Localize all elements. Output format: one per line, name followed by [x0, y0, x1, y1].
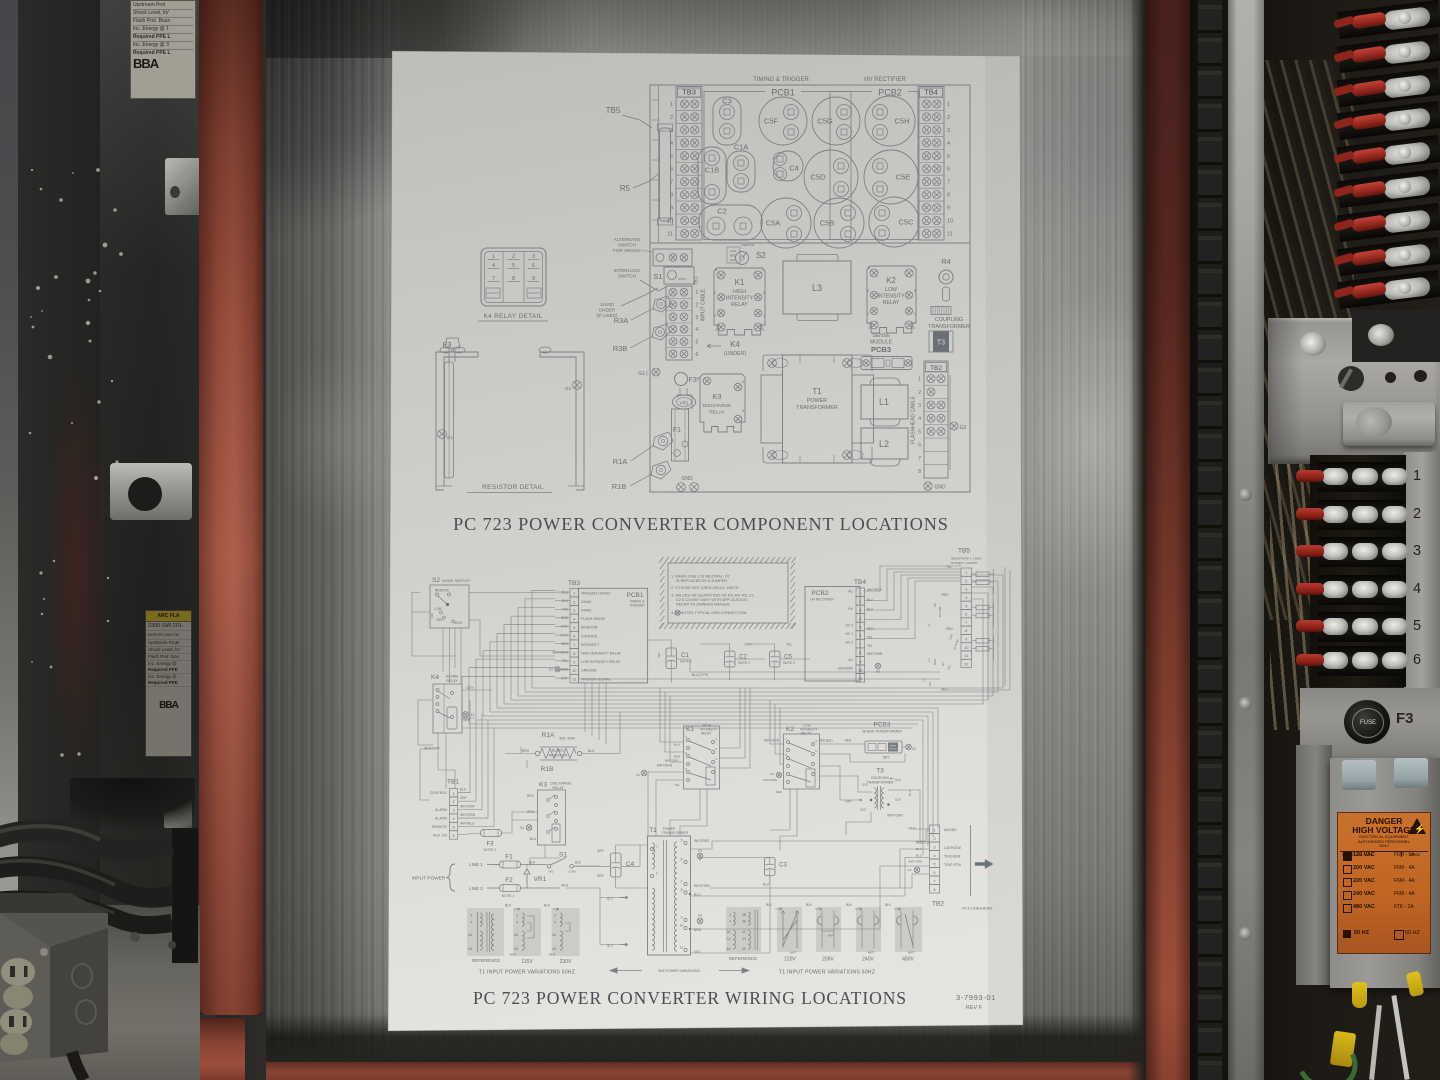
svg-text:UNDER: UNDER: [599, 308, 616, 313]
svg-text:4: 4: [715, 328, 717, 332]
svg-text:35K, 50W: 35K, 50W: [559, 737, 575, 741]
svg-text:QC6: QC6: [862, 783, 868, 787]
svg-text:1: 1: [763, 314, 765, 318]
svg-text:SENSE: SENSE: [872, 333, 890, 339]
svg-text:BLU: BLU: [908, 790, 912, 796]
svg-text:TB3: TB3: [682, 88, 696, 97]
svg-text:7: 7: [762, 268, 764, 272]
svg-text:RED: RED: [819, 739, 826, 743]
svg-text:L1: L1: [879, 397, 889, 407]
svg-text:1: 1: [696, 290, 699, 296]
svg-text:7: 7: [670, 180, 673, 186]
svg-text:LINE 1: LINE 1: [469, 862, 483, 867]
svg-text:TRIGGER 120VAC: TRIGGER 120VAC: [581, 591, 611, 595]
svg-text:4: 4: [670, 141, 673, 147]
svg-text:N/O: N/O: [548, 870, 554, 874]
svg-text:RED: RED: [522, 749, 530, 753]
svg-text:WHT: WHT: [463, 718, 471, 722]
svg-text:8: 8: [868, 266, 870, 270]
svg-text:2: 2: [867, 312, 869, 316]
svg-text:10: 10: [858, 667, 863, 672]
svg-text:RED: RED: [826, 739, 833, 743]
svg-text:GRY: GRY: [597, 874, 605, 878]
svg-text:GROUND: GROUND: [581, 669, 597, 673]
svg-text:2: 2: [714, 314, 716, 318]
svg-text:INTENSITY: INTENSITY: [726, 296, 754, 302]
svg-text:4: 4: [729, 920, 731, 924]
svg-text:G1: G1: [636, 773, 640, 777]
svg-text:GRY: GRY: [466, 686, 474, 690]
svg-text:2: 2: [670, 115, 673, 121]
svg-text:K4 RELAY DETAIL: K4 RELAY DETAIL: [483, 313, 542, 320]
svg-text:BRN: BRN: [694, 928, 702, 932]
svg-text:BLU: BLU: [867, 598, 874, 602]
svg-text:FOR 480VAC: FOR 480VAC: [613, 248, 641, 253]
svg-text:C4: C4: [626, 861, 635, 868]
svg-text:11: 11: [947, 231, 953, 237]
svg-text:3: 3: [913, 326, 915, 330]
svg-text:IS REPLACED BY A JUMPER.: IS REPLACED BY A JUMPER.: [676, 579, 728, 583]
svg-text:RED: RED: [776, 790, 783, 794]
svg-text:YEL: YEL: [657, 652, 661, 658]
svg-text:9: 9: [947, 206, 950, 212]
svg-text:G2: G2: [912, 747, 916, 751]
svg-text:4: 4: [554, 921, 556, 925]
svg-text:R1B: R1B: [612, 482, 627, 491]
svg-text:8: 8: [947, 193, 950, 199]
svg-text:HV RECTIFIER: HV RECTIFIER: [810, 598, 834, 602]
svg-text:G2: G2: [907, 868, 911, 872]
svg-text:SWITCH: SWITCH: [618, 243, 636, 248]
svg-text:RESISTOR DETAIL: RESISTOR DETAIL: [482, 484, 544, 491]
svg-text:MODE SWITCH: MODE SWITCH: [442, 579, 470, 583]
svg-text:ANODE: ANODE: [944, 828, 957, 832]
svg-text:CONTROL: CONTROL: [430, 791, 447, 795]
svg-text:K1: K1: [686, 726, 694, 733]
svg-text:WHT: WHT: [790, 951, 797, 955]
svg-text:C5B: C5B: [820, 219, 835, 228]
svg-text:RELAY: RELAY: [709, 410, 725, 416]
svg-text:WHT: WHT: [510, 953, 517, 957]
svg-text:24VAC: 24VAC: [581, 600, 592, 604]
svg-text:BLK: BLK: [575, 861, 582, 865]
svg-text:BLU (TYP): BLU (TYP): [692, 673, 708, 677]
svg-text:INPUT POWER: INPUT POWER: [412, 876, 446, 882]
svg-text:TB1: TB1: [447, 779, 459, 786]
svg-text:8: 8: [742, 380, 744, 384]
svg-text:4: 4: [516, 921, 518, 925]
svg-text:3: 3: [729, 913, 731, 917]
svg-text:3: 3: [470, 914, 472, 918]
svg-text:L3: L3: [927, 658, 931, 662]
svg-text:G1: G1: [447, 435, 454, 440]
svg-text:7: 7: [492, 276, 495, 282]
svg-text:240V: 240V: [862, 957, 874, 963]
svg-text:GROUND: GROUND: [838, 667, 854, 671]
svg-text:BLK: BLK: [544, 904, 551, 908]
svg-text:L3: L3: [812, 283, 822, 293]
svg-text:WHT/ORN: WHT/ORN: [867, 652, 883, 656]
svg-text:SEE POWER VARIATIONS: SEE POWER VARIATIONS: [658, 969, 700, 973]
svg-text:BLK: BLK: [460, 788, 467, 792]
svg-text:PC 723 POWER CONVERTER COM: PC 723 POWER CONVERTER COMPONENT LOCATIO…: [453, 514, 949, 534]
svg-text:C1: C1: [681, 653, 689, 659]
svg-text:2. F3 FUSE NOT USED ON ALL UN: 2. F3 FUSE NOT USED ON ALL UNITS.: [671, 586, 739, 590]
svg-text:C2: C2: [717, 207, 727, 216]
svg-text:HIGH INTENSITY RELAY: HIGH INTENSITY RELAY: [581, 652, 622, 656]
svg-text:6: 6: [681, 858, 683, 862]
svg-text:WHT: WHT: [828, 934, 835, 938]
svg-text:4. DENOTES TYPICAL GND CO: 4. DENOTES TYPICAL GND CONNECTION.: [671, 611, 747, 615]
svg-text:2: 2: [656, 872, 658, 876]
svg-text:C2: C2: [739, 655, 747, 661]
svg-text:C5A: C5A: [766, 219, 781, 228]
svg-text:10: 10: [572, 668, 577, 673]
svg-text:RELAY: RELAY: [701, 732, 712, 736]
svg-text:C5E: C5E: [896, 173, 911, 182]
svg-text:RELAY: RELAY: [552, 786, 564, 790]
svg-text:5: 5: [696, 340, 699, 346]
svg-text:2: 2: [512, 254, 515, 260]
svg-text:3: 3: [918, 403, 921, 409]
svg-text:5: 5: [512, 263, 515, 269]
svg-text:LINE 2: LINE 2: [469, 886, 483, 891]
svg-text:DISCHARGE: DISCHARGE: [703, 403, 732, 409]
svg-text:3-7993-01: 3-7993-01: [956, 993, 996, 1002]
svg-text:5: 5: [670, 154, 673, 160]
svg-text:BLU: BLU: [674, 743, 680, 747]
svg-text:G2: G2: [565, 386, 572, 391]
svg-text:WHT: WHT: [908, 951, 915, 955]
svg-text:BLK: BLK: [766, 903, 773, 907]
svg-text:F1: F1: [505, 854, 513, 861]
svg-text:TRIG RTN: TRIG RTN: [944, 863, 961, 867]
svg-text:8: 8: [681, 888, 683, 892]
svg-text:TB2: TB2: [930, 365, 942, 372]
svg-text:S2: S2: [432, 577, 440, 584]
svg-text:K2: K2: [786, 726, 794, 733]
svg-text:AC: AC: [848, 658, 853, 662]
svg-text:2: 2: [947, 115, 950, 121]
svg-text:5: 5: [681, 839, 683, 843]
svg-text:1. WHEN LINE 2 IS NEUTRAL, F2: 1. WHEN LINE 2 IS NEUTRAL, F2: [671, 575, 729, 579]
svg-text:C1B: C1B: [705, 166, 720, 175]
svg-text:BLEED: BLEED: [552, 749, 564, 753]
svg-text:MED: MED: [730, 254, 736, 258]
svg-text:5: 5: [918, 429, 921, 435]
svg-text:HIGH: HIGH: [733, 289, 746, 295]
svg-text:6: 6: [867, 289, 869, 293]
svg-text:NOTE 3: NOTE 3: [783, 661, 795, 665]
svg-text:R3A: R3A: [614, 316, 629, 325]
svg-text:NOTE 3: NOTE 3: [738, 661, 750, 665]
svg-text:G2: G2: [876, 670, 880, 674]
svg-text:R5: R5: [933, 603, 937, 607]
svg-text:3: 3: [516, 914, 518, 918]
svg-text:R1B: R1B: [541, 766, 554, 773]
svg-text:230V: 230V: [560, 959, 572, 965]
svg-text:T1 INPUT POWER VARIATIONS: T1 INPUT POWER VARIATIONS 60HZ: [779, 970, 875, 976]
svg-text:-HV: -HV: [847, 607, 854, 611]
svg-text:1: 1: [947, 102, 950, 108]
svg-text:BLU: BLU: [916, 854, 922, 858]
svg-text:REFER TO OWNERS MANUAL.: REFER TO OWNERS MANUAL.: [676, 603, 731, 607]
svg-text:C2: C2: [770, 772, 774, 776]
svg-text:10: 10: [964, 645, 969, 650]
svg-text:PCB1: PCB1: [771, 88, 795, 98]
svg-text:4: 4: [868, 326, 870, 330]
svg-text:4C: 4C: [742, 947, 747, 951]
svg-text:INTERLOCK: INTERLOCK: [614, 268, 641, 273]
svg-text:AC: AC: [848, 590, 853, 594]
svg-text:TRIGGER: TRIGGER: [944, 855, 961, 859]
svg-text:WHT/GRN: WHT/GRN: [763, 778, 777, 782]
svg-text:QC4: QC4: [895, 798, 901, 802]
svg-text:480V: 480V: [902, 957, 914, 963]
svg-text:MODULE: MODULE: [889, 749, 897, 751]
svg-text:LOW: LOW: [730, 249, 737, 253]
svg-text:WHT/ORN: WHT/ORN: [460, 813, 476, 817]
svg-text:BLK: BLK: [885, 903, 892, 907]
svg-text:COM: COM: [569, 870, 577, 874]
svg-text:C3: C3: [722, 97, 732, 106]
svg-text:4: 4: [947, 141, 950, 147]
svg-text:6: 6: [532, 263, 535, 269]
svg-text:SENSE: SENSE: [890, 746, 897, 748]
svg-text:GRY: GRY: [597, 849, 605, 853]
svg-text:MONITOR: MONITOR: [581, 626, 598, 630]
svg-text:4: 4: [696, 327, 699, 333]
svg-text:S1: S1: [653, 272, 662, 281]
svg-text:BLK: BLK: [806, 903, 813, 907]
svg-text:WHT/GRY: WHT/GRY: [460, 805, 476, 809]
svg-text:CATHODE: CATHODE: [944, 846, 962, 850]
svg-text:13: 13: [742, 937, 746, 941]
svg-text:INTENSITY: INTENSITY: [581, 643, 600, 647]
svg-text:HIGH: HIGH: [730, 258, 737, 262]
svg-text:G2: G2: [960, 425, 967, 431]
svg-text:BLU: BLU: [867, 608, 874, 612]
svg-text:RELAY: RELAY: [731, 302, 748, 308]
svg-text:DISCHARGE: DISCHARGE: [550, 782, 572, 786]
svg-text:K2: K2: [886, 276, 896, 285]
svg-text:WHT: WHT: [561, 884, 569, 888]
svg-text:REMOTE: REMOTE: [432, 825, 448, 829]
svg-text:C2 & C3 MAY VARY WITH APPLICAT: C2 & C3 MAY VARY WITH APPLICATION.: [676, 598, 748, 602]
svg-text:REMOTE: REMOTE: [435, 589, 450, 593]
svg-text:7: 7: [681, 880, 683, 884]
svg-text:5: 5: [763, 291, 765, 295]
svg-text:TRANSFORMER: TRANSFORMER: [796, 405, 838, 411]
svg-text:C5: C5: [784, 655, 792, 661]
svg-text:12: 12: [964, 661, 969, 666]
svg-text:T3: T3: [876, 768, 884, 775]
svg-text:BLU: BLU: [763, 883, 770, 887]
svg-text:YEL: YEL: [946, 565, 952, 569]
svg-text:DIODES = 1N4007: DIODES = 1N4007: [951, 561, 978, 565]
svg-text:HIGH: HIGH: [454, 621, 463, 625]
svg-text:1: 1: [656, 845, 658, 849]
svg-text:K4: K4: [730, 340, 740, 349]
svg-text:QC2: QC2: [607, 944, 614, 948]
svg-text:RELAY: RELAY: [801, 732, 812, 736]
svg-text:BLU: BLU: [530, 837, 537, 841]
svg-text:G1 (: G1 (: [638, 371, 648, 377]
svg-text:12: 12: [727, 937, 731, 941]
svg-text:FLASH SENSE: FLASH SENSE: [581, 617, 606, 621]
svg-text:TB4: TB4: [924, 88, 938, 97]
svg-text:C3: C3: [779, 863, 787, 869]
svg-text:ORN: ORN: [945, 627, 953, 631]
svg-text:FLASHHEAD CABLE: FLASHHEAD CABLE: [911, 395, 917, 443]
svg-text:6: 6: [670, 167, 673, 173]
svg-text:VIO: VIO: [694, 950, 700, 954]
svg-text:BLK: BLK: [505, 904, 512, 908]
svg-text:PCB1: PCB1: [627, 592, 644, 599]
svg-text:R4: R4: [941, 257, 951, 266]
svg-text:GRY: GRY: [460, 796, 468, 800]
svg-text:RED: RED: [527, 794, 535, 798]
svg-text:WHT/ORN: WHT/ORN: [657, 764, 673, 768]
svg-text:GRY: GRY: [883, 756, 891, 760]
svg-text:QC5: QC5: [860, 808, 866, 812]
svg-text:C1A: C1A: [734, 143, 749, 152]
svg-text:8: 8: [715, 268, 717, 272]
svg-text:5: 5: [947, 154, 950, 160]
svg-text:9: 9: [532, 276, 535, 282]
svg-text:11: 11: [667, 231, 673, 237]
svg-text:TB5: TB5: [958, 548, 970, 555]
svg-text:BLU: BLU: [694, 893, 701, 897]
svg-text:LOW INTENSITY RELAY: LOW INTENSITY RELAY: [581, 660, 621, 664]
svg-text:QC1: QC1: [607, 897, 614, 901]
svg-text:3: 3: [947, 128, 950, 134]
svg-text:POWER: POWER: [807, 398, 827, 404]
svg-text:WHT/GRY: WHT/GRY: [424, 747, 441, 751]
svg-text:VR1: VR1: [680, 401, 689, 406]
svg-text:3B: 3B: [742, 913, 746, 917]
svg-text:TRANSFORMER: TRANSFORMER: [866, 781, 894, 785]
svg-text:K3: K3: [539, 782, 547, 789]
svg-text:PCB2: PCB2: [812, 590, 829, 597]
svg-text:YEL: YEL: [867, 644, 873, 648]
svg-text:C5C: C5C: [898, 218, 914, 227]
svg-text:GND: GND: [681, 476, 693, 482]
svg-text:TB2: TB2: [932, 901, 944, 908]
svg-text:CONTROL: CONTROL: [581, 634, 598, 638]
svg-text:HV 1: HV 1: [845, 632, 853, 636]
svg-text:4B: 4B: [742, 920, 746, 924]
svg-text:YEL: YEL: [786, 643, 792, 647]
svg-text:F3: F3: [486, 842, 494, 848]
svg-text:3: 3: [532, 254, 535, 260]
svg-text:RED: RED: [845, 739, 852, 743]
svg-text:SENSE TRANSFORMER: SENSE TRANSFORMER: [862, 730, 902, 734]
svg-text:RELAY: RELAY: [883, 300, 900, 306]
svg-text:F1: F1: [673, 427, 681, 434]
svg-text:L2: L2: [879, 439, 889, 449]
svg-text:7: 7: [947, 180, 950, 186]
svg-text:S2: S2: [756, 251, 766, 260]
svg-text:9: 9: [681, 916, 683, 920]
svg-text:6: 6: [696, 352, 699, 358]
svg-text:RESISTORS = 1 MEG: RESISTORS = 1 MEG: [951, 557, 983, 561]
svg-text:3: 3: [696, 315, 699, 321]
svg-text:WHT/ORN: WHT/ORN: [887, 814, 903, 818]
svg-text:PCB3: PCB3: [871, 345, 891, 354]
svg-text:ALARM: ALARM: [446, 675, 458, 679]
svg-text:TO FLASHHEAD: TO FLASHHEAD: [962, 906, 993, 911]
svg-text:2: 2: [918, 390, 921, 396]
svg-text:50 OHM: 50 OHM: [938, 606, 942, 617]
svg-text:1: 1: [918, 377, 921, 383]
svg-text:WHT: WHT: [549, 953, 556, 957]
svg-text:7: 7: [918, 456, 921, 462]
svg-text:11: 11: [680, 946, 684, 950]
svg-text:120V: 120V: [784, 957, 796, 963]
svg-text:ALARM: ALARM: [435, 808, 447, 812]
svg-text:QC3: QC3: [895, 778, 901, 782]
svg-text:HV RECTIFIER: HV RECTIFIER: [864, 77, 906, 83]
svg-text:REFERENCE: REFERENCE: [729, 956, 757, 961]
svg-text:REFERENCE: REFERENCE: [472, 958, 500, 963]
svg-text:TRIGGER SIGNAL: TRIGGER SIGNAL: [581, 677, 611, 681]
svg-text:5: 5: [742, 409, 744, 413]
svg-text:ALARM: ALARM: [435, 816, 447, 820]
svg-text:WHT/ORN: WHT/ORN: [764, 739, 780, 743]
svg-text:LOW: LOW: [434, 607, 441, 611]
svg-text:TB1: TB1: [694, 276, 700, 285]
svg-text:WHT/BLU: WHT/BLU: [460, 822, 475, 826]
svg-text:GND: GND: [934, 485, 946, 491]
svg-text:G1: G1: [520, 826, 525, 830]
svg-text:1: 1: [733, 425, 735, 429]
svg-text:R4: R4: [941, 662, 945, 666]
svg-text:R3B: R3B: [613, 344, 628, 353]
svg-text:10: 10: [947, 219, 953, 225]
svg-text:R1A: R1A: [613, 457, 628, 466]
svg-text:3: 3: [554, 914, 556, 918]
svg-text:WHT/ORN: WHT/ORN: [694, 884, 710, 888]
svg-text:C4: C4: [789, 164, 799, 173]
svg-text:SWITCH: SWITCH: [618, 274, 636, 279]
svg-text:(UNDER): (UNDER): [724, 351, 746, 357]
svg-text:TRANSFORMER: TRANSFORMER: [928, 324, 970, 330]
svg-text:24K: 24K: [430, 613, 434, 618]
svg-text:L1: L1: [927, 623, 931, 627]
svg-text:3. VALUES OR QUANTITIES OF R3: 3. VALUES OR QUANTITIES OF R3, R4, R5, C…: [671, 594, 755, 598]
svg-text:10: 10: [667, 219, 673, 225]
svg-text:G2: G2: [698, 914, 702, 918]
svg-text:RED: RED: [942, 593, 950, 597]
svg-text:HV 2: HV 2: [845, 641, 853, 645]
svg-text:2: 2: [696, 303, 699, 309]
svg-text:T3: T3: [937, 340, 945, 347]
svg-text:1: 1: [670, 102, 673, 108]
svg-text:G1: G1: [470, 713, 475, 717]
svg-text:T1: T1: [812, 387, 822, 396]
svg-text:3C: 3C: [742, 930, 747, 934]
svg-text:G1: G1: [549, 668, 554, 672]
svg-text:3: 3: [762, 328, 764, 332]
svg-text:24VAC: 24VAC: [581, 609, 592, 613]
svg-text:YEL: YEL: [928, 681, 932, 687]
svg-text:1: 1: [492, 254, 495, 260]
svg-text:RED: RED: [909, 827, 917, 831]
svg-text:BLK: BLK: [846, 903, 853, 907]
svg-text:HV 3: HV 3: [845, 624, 853, 628]
svg-text:1: 1: [914, 312, 916, 316]
